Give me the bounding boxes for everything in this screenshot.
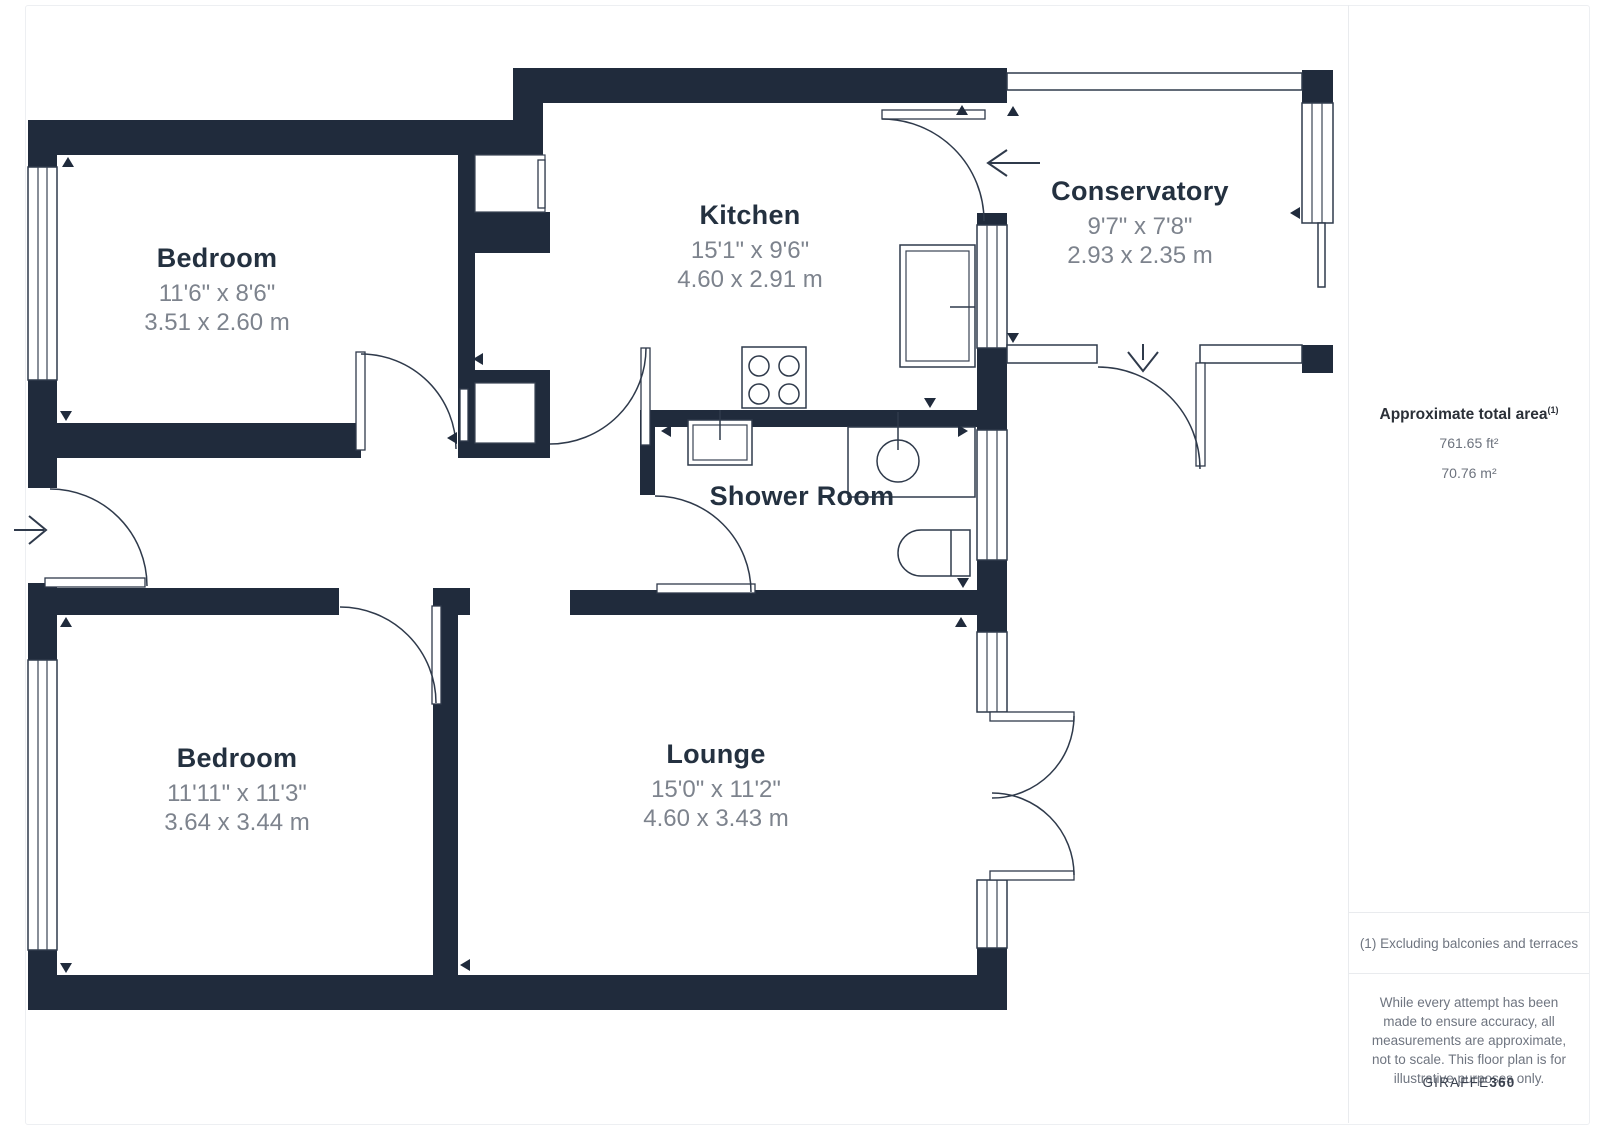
room-dimensions-metric: 3.64 x 3.44 m <box>164 808 309 837</box>
french-doors-lounge <box>990 712 1074 880</box>
room-name: Bedroom <box>144 243 289 274</box>
door-kitchen-conservatory <box>882 110 985 221</box>
total-area-title-text: Approximate total area <box>1380 406 1548 423</box>
entrance-arrow-left-icon <box>988 150 1040 176</box>
room-name: Bedroom <box>164 743 309 774</box>
room-dimensions-imperial: 11'11" x 11'3" <box>164 779 309 808</box>
entrance-arrow-right-icon <box>14 516 46 544</box>
footnote-text: (1) Excluding balconies and terraces <box>1360 936 1578 951</box>
door-bedroom2 <box>340 606 441 704</box>
room-dimensions-metric: 4.60 x 3.43 m <box>643 804 788 833</box>
kitchen-sink-unit-icon <box>900 245 975 367</box>
window-bedroom2-left <box>28 660 57 950</box>
disclaimer-text: While every attempt has been made to ens… <box>1363 993 1575 1088</box>
total-area-title: Approximate total area(1) <box>1349 405 1589 424</box>
total-area-block: Approximate total area(1) 761.65 ft² 70.… <box>1349 405 1589 484</box>
front-door <box>45 489 147 587</box>
room-label-kitchen: Kitchen 15'1" x 9'6" 4.60 x 2.91 m <box>677 200 822 294</box>
window-bedroom1-left <box>28 167 57 380</box>
room-dimensions-metric: 3.51 x 2.60 m <box>144 308 289 337</box>
room-name: Kitchen <box>677 200 822 231</box>
room-name: Conservatory <box>1051 176 1229 207</box>
room-dimensions-metric: 4.60 x 2.91 m <box>677 265 822 294</box>
door-bedroom1 <box>356 352 456 450</box>
brand-name: GIRAFFE <box>1422 1075 1489 1090</box>
room-dimensions-imperial: 15'1" x 9'6" <box>677 236 822 265</box>
toilet-icon <box>898 530 970 576</box>
room-dimensions-imperial: 15'0" x 11'2" <box>643 775 788 804</box>
room-dimensions-imperial: 9'7" x 7'8" <box>1051 212 1229 241</box>
window-shower-right <box>977 430 1007 560</box>
room-name: Lounge <box>643 739 788 770</box>
door-conservatory-garden <box>1098 363 1205 469</box>
total-area-sqft: 761.65 ft² <box>1349 432 1589 454</box>
room-label-bedroom-2: Bedroom 11'11" x 11'3" 3.64 x 3.44 m <box>164 743 309 837</box>
info-sidebar: Approximate total area(1) 761.65 ft² 70.… <box>1348 5 1589 1123</box>
footnote-marker: (1) <box>1547 405 1558 415</box>
brand-suffix: 360 <box>1489 1075 1515 1090</box>
brand-logo: GIRAFFE360 <box>1349 1075 1589 1090</box>
room-dimensions-metric: 2.93 x 2.35 m <box>1051 241 1229 270</box>
window-kitchen-right <box>977 225 1007 348</box>
cupboard-kitchen <box>475 155 545 212</box>
door-hall-kitchen <box>550 348 650 445</box>
window-lounge-right-lower <box>977 880 1007 948</box>
floorplan-page: Bedroom 11'6" x 8'6" 3.51 x 2.60 m Kitch… <box>0 0 1600 1131</box>
room-label-bedroom-1: Bedroom 11'6" x 8'6" 3.51 x 2.60 m <box>144 243 289 337</box>
total-area-sqm: 70.76 m² <box>1349 462 1589 484</box>
room-name: Shower Room <box>710 481 895 512</box>
room-label-lounge: Lounge 15'0" x 11'2" 4.60 x 3.43 m <box>643 739 788 833</box>
room-label-conservatory: Conservatory 9'7" x 7'8" 2.93 x 2.35 m <box>1051 176 1229 270</box>
footnote-box: (1) Excluding balconies and terraces <box>1349 912 1589 974</box>
window-lounge-right-upper <box>977 632 1007 712</box>
hob-icon <box>742 347 806 408</box>
entrance-arrow-down-icon <box>1128 344 1158 371</box>
room-dimensions-imperial: 11'6" x 8'6" <box>144 279 289 308</box>
room-label-shower-room: Shower Room <box>710 481 895 517</box>
